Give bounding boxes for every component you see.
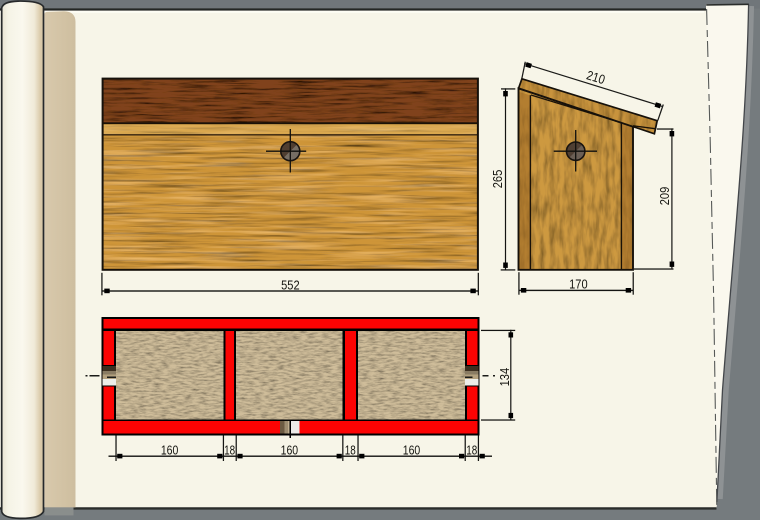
svg-text:18: 18: [224, 442, 235, 457]
svg-text:160: 160: [403, 442, 421, 457]
svg-text:18: 18: [345, 442, 356, 457]
svg-text:552: 552: [281, 277, 300, 292]
svg-text:265: 265: [490, 170, 505, 189]
svg-text:209: 209: [657, 187, 672, 206]
svg-text:134: 134: [497, 368, 512, 387]
svg-text:170: 170: [569, 277, 588, 292]
svg-text:160: 160: [161, 442, 179, 457]
svg-text:18: 18: [466, 442, 477, 457]
svg-text:160: 160: [281, 442, 299, 457]
